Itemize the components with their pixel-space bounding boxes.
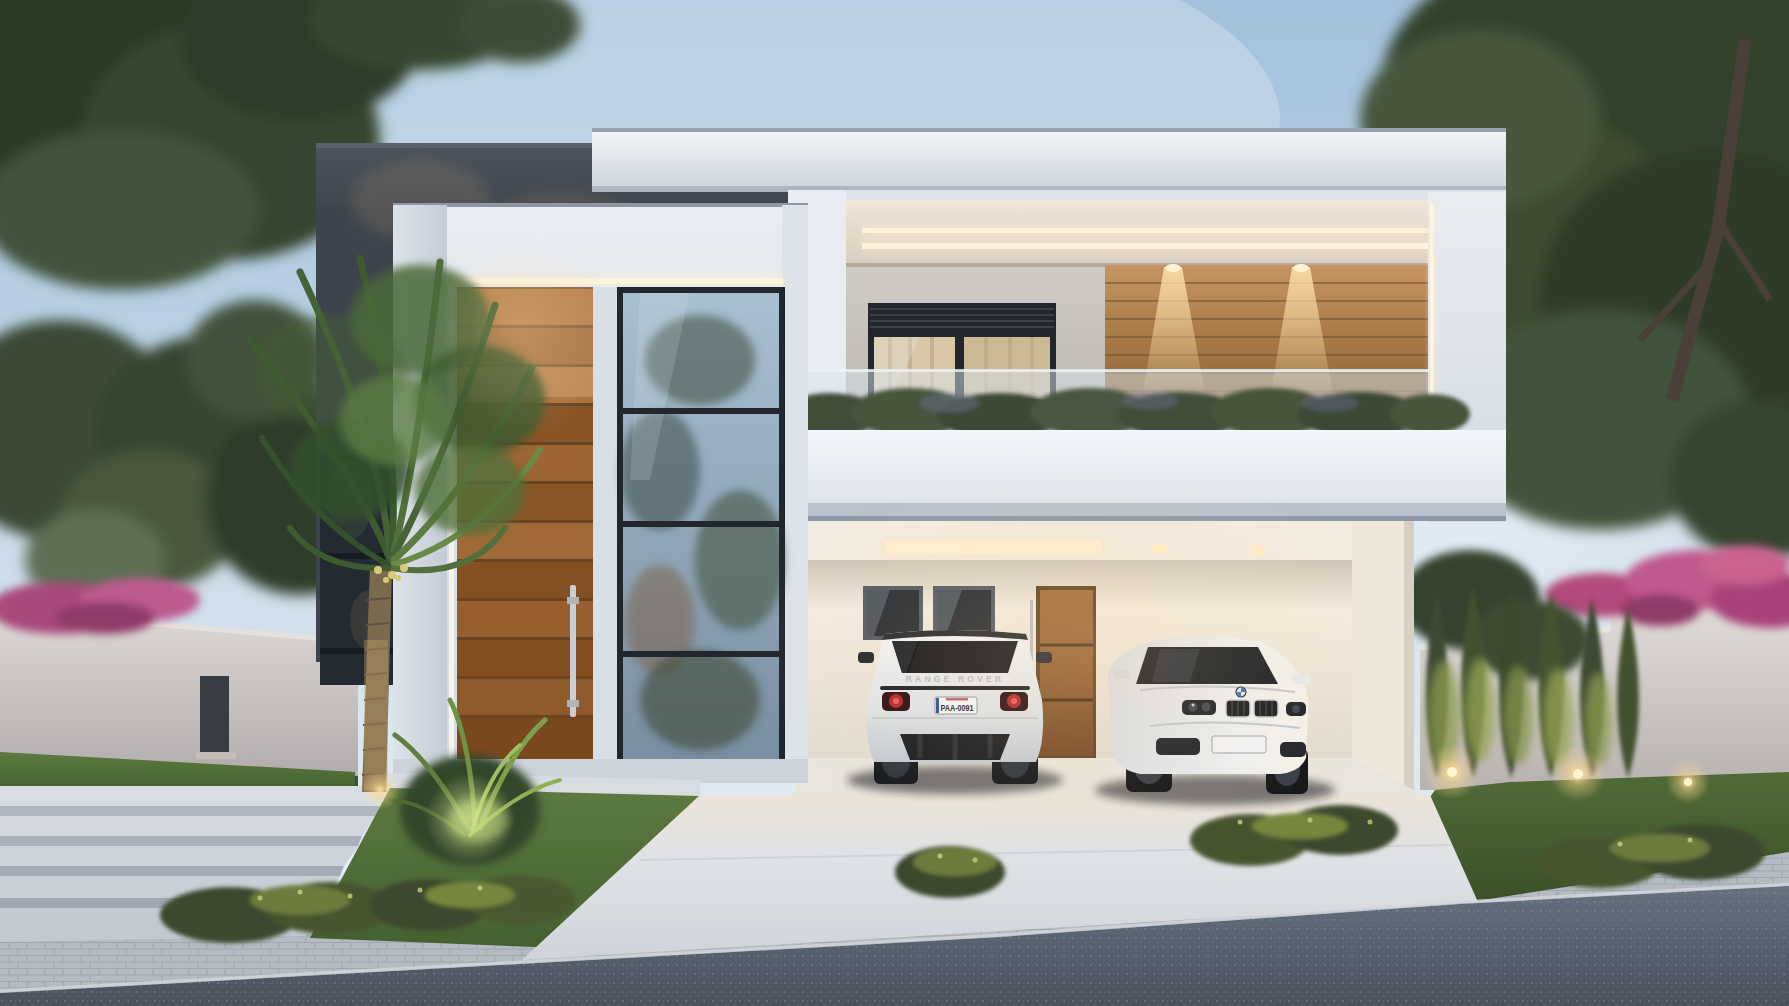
tower-glass-wall [620,290,785,777]
service-door [200,676,229,754]
roof-slab [592,128,1506,192]
ground-light-fern [425,773,515,863]
ground-light-palm [360,770,400,810]
soffit [846,200,1430,269]
architectural-render-scene: RANGE ROVER PAA-0091 [0,0,1789,1006]
entry-door-handle [570,585,576,717]
scene-canvas: RANGE ROVER PAA-0091 [0,0,1789,1006]
